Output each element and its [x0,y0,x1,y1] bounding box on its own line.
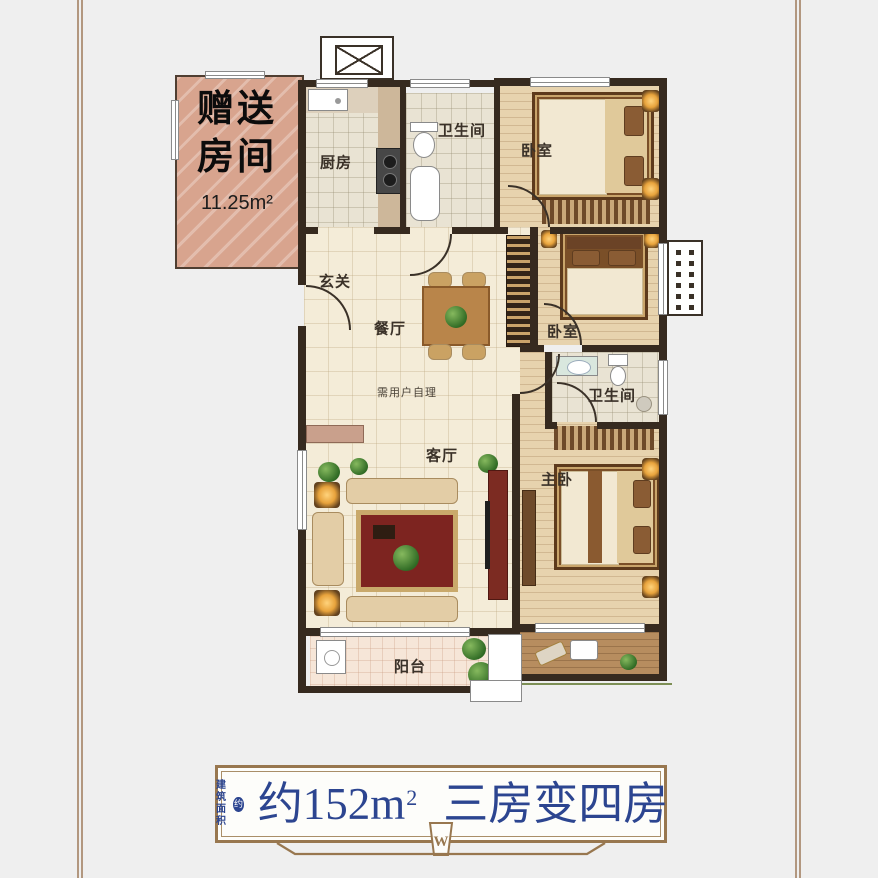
sofa [312,512,344,586]
toilet-tank [410,122,438,132]
kitchen-sink [308,89,348,111]
sliding-door [535,623,645,633]
area-prefix-line2: 面积 [214,804,231,828]
room-label-dining: 餐厅 [374,318,406,339]
pillow [624,156,644,186]
wall [298,686,490,693]
wall [298,632,306,693]
flue-x-icon [335,45,383,75]
gift-room-title-line1: 赠送 [197,90,277,127]
pillow [608,250,636,266]
area-prefix-line1: 建筑 [214,780,231,804]
nightstand-lamp [642,90,660,112]
room-label-foyer: 玄关 [319,271,351,292]
room-label-bath2: 卫生间 [588,385,636,406]
burner-icon [383,155,397,169]
wall [520,345,544,352]
wall [374,227,410,234]
window [171,100,179,160]
area-prefix-text: 建筑 面积 [214,780,231,828]
wall [514,674,667,681]
rug-flowers [393,545,419,571]
headline-area: 约152m [258,779,406,829]
room-label-bath1: 卫生间 [438,120,486,141]
dining-chair [462,344,486,360]
wall [545,422,557,429]
bathtub [410,166,440,221]
bed [560,230,648,320]
pillow [624,106,644,136]
floor-lamp [314,590,340,616]
floor-drain-icon [636,396,652,412]
toilet-tank [608,354,628,366]
headline-sup: 2 [406,785,417,810]
tv-icon [485,501,490,569]
wall [659,78,667,230]
tv-stand [488,470,508,600]
wall [452,227,500,234]
stove [376,148,402,194]
room-label-bedroom2: 卧室 [547,321,579,342]
nightstand-lamp [642,458,660,480]
console-cabinet [306,425,364,443]
wall [530,227,538,352]
footer-ribbon [215,841,667,859]
nightstand-lamp [642,178,660,200]
tv-cabinet [522,490,536,586]
pillow [633,526,651,554]
wall [597,422,660,429]
bed-runner [588,471,602,563]
gift-room-area: 11.25m² [201,192,273,215]
room-label-living: 客厅 [426,445,458,466]
wall [550,227,667,234]
area-prefix: 建筑 面积 约 [214,780,244,828]
wall [494,78,500,227]
page-frame-line [81,0,83,878]
vanity [556,356,598,376]
footer-title-box: 建筑 面积 约 约152m2三房变四房 W [215,765,667,843]
pillow [572,250,600,266]
wardrobe [554,426,654,450]
bed-duvet [567,268,643,315]
washing-machine [316,640,346,674]
page-frame-line [799,0,801,878]
page: { "page": {"background": "#efefef", "fra… [0,0,878,878]
flue-box [320,36,394,80]
window [205,71,265,79]
burner-icon [383,173,397,187]
wall [298,326,306,450]
sink [567,360,591,375]
wall [582,345,667,352]
gift-room-title-line2: 房间 [197,138,277,175]
wall [298,530,306,632]
floor-plan: 赠送 房间 11.25m² 厨房 卫生间 卧室 玄关 餐厅 需用户自理 卧室 卫… [170,30,706,706]
balcony-trim [514,683,672,685]
floor-lamp [314,482,340,508]
headline-title: 三房变四房 [443,779,668,829]
wall [659,632,667,680]
page-frame-line [77,0,79,878]
sofa [346,478,458,504]
toilet [610,366,626,386]
cushion [570,640,598,660]
nightstand-lamp [642,576,660,598]
headboard [567,237,641,249]
plant [462,638,486,660]
ac-platform-slats [689,248,694,310]
washer-drum-icon [324,650,340,666]
room-label-master: 主卧 [541,469,573,490]
window [297,450,307,530]
window [658,360,668,415]
wall [298,80,306,285]
table-centerpiece [445,306,467,328]
ac-platform-slats [676,248,681,310]
coffee-table [373,525,395,539]
dining-table [422,286,490,346]
wall [400,80,406,227]
ac-platform [667,240,703,316]
wall [306,227,318,234]
sofa [346,596,458,622]
wardrobe [542,200,650,224]
approx-badge: 约 [233,797,243,812]
room-label-balcony: 阳台 [394,656,426,677]
toilet [413,132,435,158]
faucet-icon [335,98,341,104]
room-label-kitchen: 厨房 [320,152,352,173]
room-label-bedroom1: 卧室 [521,140,553,161]
plant [620,654,637,670]
hall-cabinet [506,235,532,347]
room-note: 需用户自理 [377,384,437,400]
footer-headline: 约152m2三房变四房 [258,782,669,827]
wall [500,227,508,234]
window [410,79,470,88]
plant [350,458,368,475]
page-frame-line [795,0,797,878]
sliding-door [320,627,470,637]
rug [356,510,458,592]
window [316,79,368,88]
dining-chair [428,344,452,360]
pillow [633,480,651,508]
entry-step [470,680,522,702]
wall [512,394,520,632]
plant [318,462,340,482]
window [530,77,610,87]
